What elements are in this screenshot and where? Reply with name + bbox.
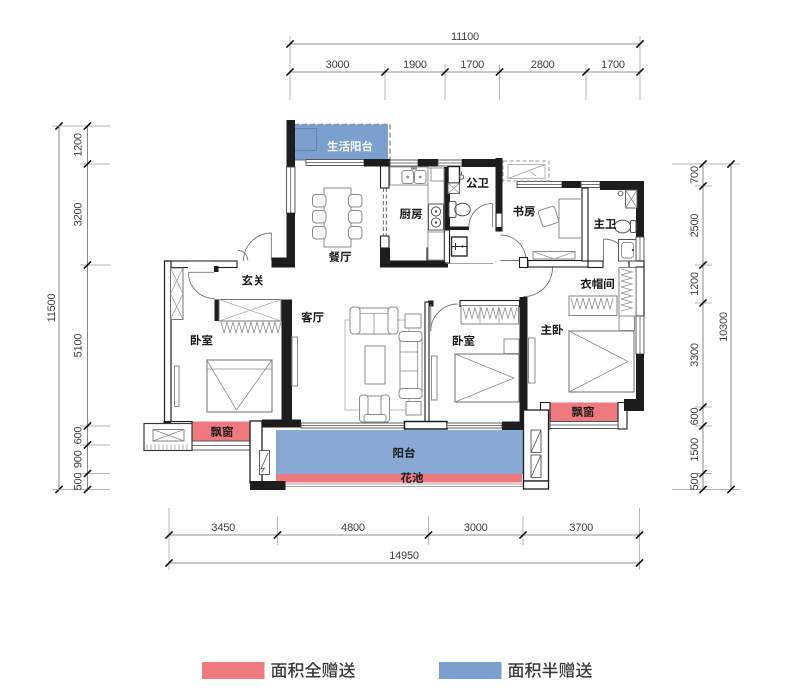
svg-text:10300: 10300 — [718, 312, 730, 342]
svg-text:2500: 2500 — [689, 214, 701, 238]
svg-text:1500: 1500 — [689, 438, 701, 462]
svg-text:14950: 14950 — [389, 550, 419, 562]
svg-text:5100: 5100 — [73, 334, 85, 358]
svg-text:600: 600 — [73, 427, 85, 445]
svg-text:600: 600 — [689, 408, 701, 426]
svg-text:11100: 11100 — [451, 31, 479, 43]
svg-text:900: 900 — [73, 450, 85, 468]
svg-text:500: 500 — [73, 473, 85, 491]
svg-text:1200: 1200 — [73, 133, 85, 157]
svg-text:3000: 3000 — [464, 522, 488, 534]
svg-text:2800: 2800 — [531, 59, 555, 71]
svg-text:1700: 1700 — [601, 59, 625, 71]
svg-text:3450: 3450 — [211, 522, 235, 534]
svg-text:700: 700 — [689, 166, 701, 184]
svg-text:3300: 3300 — [689, 343, 701, 367]
svg-text:1900: 1900 — [403, 59, 427, 71]
svg-text:500: 500 — [689, 473, 701, 491]
svg-text:1700: 1700 — [460, 59, 484, 71]
svg-text:11500: 11500 — [46, 294, 58, 323]
svg-text:3700: 3700 — [569, 522, 593, 534]
svg-text:1200: 1200 — [689, 272, 701, 296]
svg-text:3200: 3200 — [73, 203, 85, 227]
svg-text:4800: 4800 — [341, 522, 365, 534]
svg-text:3000: 3000 — [326, 59, 350, 71]
